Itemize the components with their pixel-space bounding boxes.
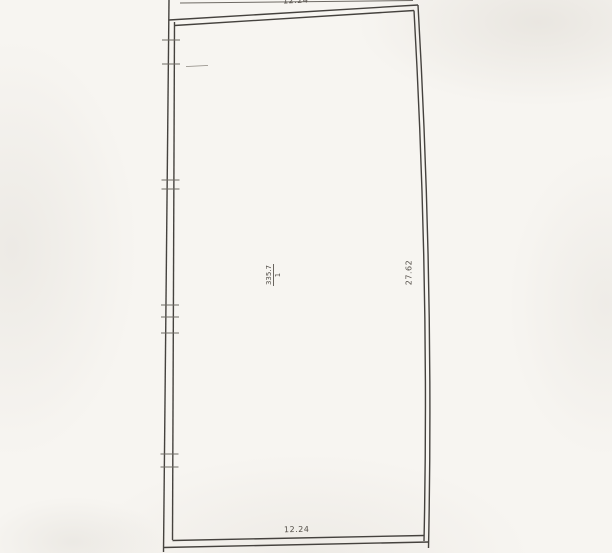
dimension-right: 27.62 — [405, 251, 414, 295]
room-number: 1 — [274, 255, 282, 295]
scanned-floor-plan-page: 12.24 12.24 27.62 335.7 1 — [0, 0, 612, 553]
dimension-bottom: 12.24 — [284, 525, 310, 534]
wall-right-inner — [414, 11, 425, 542]
room-label: 335.7 1 — [265, 255, 299, 295]
wall-left-outer — [164, 0, 170, 552]
wall-left-inner — [173, 22, 175, 540]
wall-bottom-outer — [164, 542, 430, 548]
room-area: 335.7 — [265, 264, 274, 286]
dimension-top: 12.24 — [283, 0, 309, 5]
wall-bottom-inner — [173, 536, 425, 541]
interior-line — [186, 66, 208, 67]
building-outline-svg — [0, 0, 612, 553]
left-wall-opening-ticks — [161, 40, 181, 467]
